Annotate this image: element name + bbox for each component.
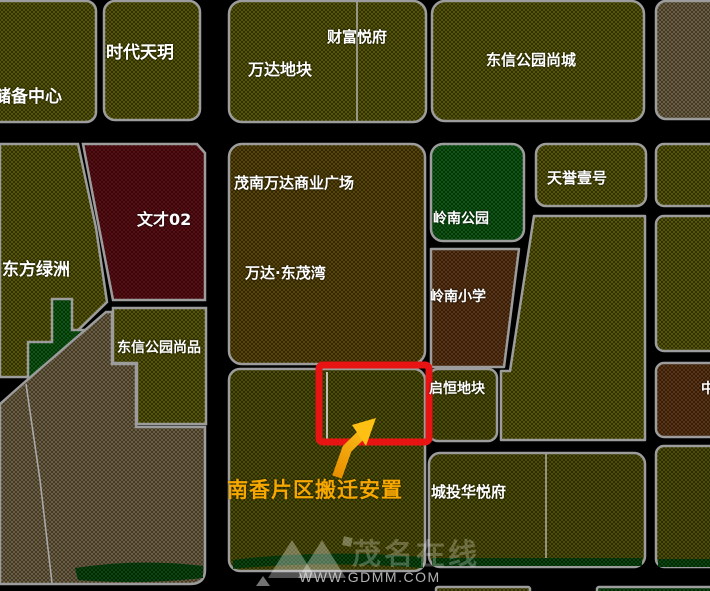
parcel-label-dongxin-shangpin: 东信公园尚品 — [117, 341, 201, 355]
parcel-label-qiheng-dikuai: 启恒地块 — [429, 382, 485, 396]
parcel-label-wanda-dongmaowan: 万达·东茂湾 — [245, 266, 326, 281]
parcel-lingnan-school — [431, 249, 519, 367]
parcel-label-shidai-tianyue: 时代天玥 — [106, 45, 174, 62]
parcel-bottom-right — [656, 446, 710, 567]
parcel-bottom-sliver-2 — [597, 587, 710, 591]
parcel-label-chengtou-huayuefu: 城投华悦府 — [431, 485, 506, 500]
green-strip — [658, 559, 710, 567]
parcel-label-lingnan-park: 岭南公园 — [433, 212, 489, 226]
parcel-label-lingnan-school: 岭南小学 — [430, 290, 486, 304]
parcel-map: 储备中心 时代天玥 万达地块 财富悦府 东信公园尚城 文才02 东方绿洲 茂南万… — [0, 0, 710, 591]
parcel-label-maonan-wanda-plaza: 茂南万达商业广场 — [234, 176, 354, 191]
annotation-text: 南香片区搬迁安置 — [227, 480, 403, 501]
parcel-label-tianyu-yihao: 天誉壹号 — [547, 171, 607, 186]
parcel-mid-right-large — [501, 216, 645, 440]
parcel-qiheng — [429, 369, 497, 441]
parcel-label-wencai-02: 文才02 — [137, 212, 191, 228]
parcel-right-col-3 — [656, 216, 710, 351]
parcel-top-right-corner — [656, 1, 710, 119]
parcel-label-caifu-yuefu: 财富悦府 — [327, 30, 387, 45]
parcel-right-col-2 — [656, 144, 710, 206]
parcel-label-dongfang-lvzhou: 东方绿洲 — [2, 262, 70, 279]
parcel-bottom-sliver-1 — [436, 587, 530, 591]
map-canvas — [0, 0, 710, 591]
parcel-label-chubei-center: 储备中心 — [0, 89, 62, 106]
watermark-logo-text: 茂名在线 — [352, 540, 480, 569]
parcel-right-brown — [656, 363, 710, 437]
parcel-label-wanda-dikuai: 万达地块 — [248, 62, 312, 78]
parcel-label-right-edge-partial: 中 — [701, 382, 710, 396]
parcel-label-dongxin-shangcheng: 东信公园尚城 — [486, 53, 576, 68]
watermark-url: WWW.GDMM.COM — [299, 570, 441, 584]
